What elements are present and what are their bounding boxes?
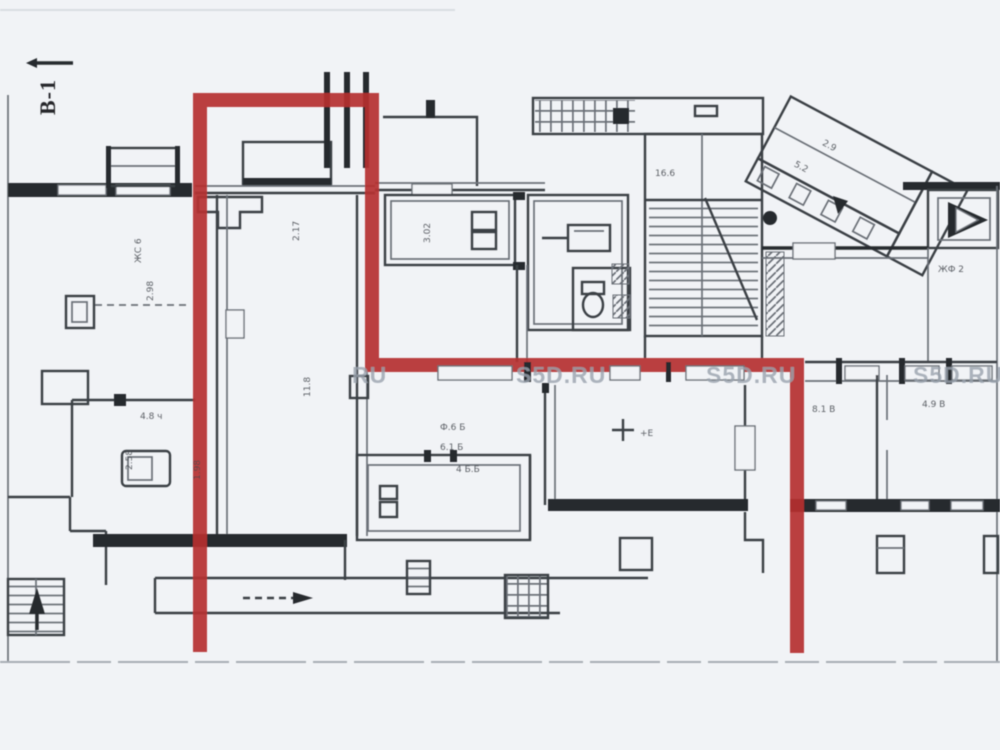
dimension-annotation: 2.98 [146,281,156,301]
exterior-wall [243,178,331,186]
wall-tick [757,167,779,189]
wall-tick [613,108,629,124]
dimension-annotation: 4.8 ч [140,412,163,422]
wall-tick [114,394,126,406]
dimension-annotation: 5.2 [792,160,809,176]
dimension-annotation: 6.1 Б [440,443,463,453]
wall-hatch [766,252,784,336]
dimension-annotation: 2.58 [125,450,135,470]
shaft-hatch [505,575,548,618]
window [610,366,640,380]
interior-walls [8,400,195,585]
dimension-annotation: 2.9 [820,139,838,155]
fixture [66,296,94,328]
wall-tick [424,450,431,462]
dimension-annotation: 16.6 [655,169,675,179]
wing-corridor [746,158,899,256]
dimension-annotation: 1.98 [193,460,203,480]
window [951,501,983,510]
window [58,185,106,195]
dimension-annotation: +Е [640,429,654,439]
elevator-block [903,182,1000,661]
fixture [380,486,397,499]
stair-treads [649,200,758,332]
watermark-text: S5D.RU [913,362,1000,388]
watermark-text: S5D.RU [516,362,606,388]
room-inner [534,201,622,324]
stair-bottom-left [8,579,64,635]
fixture-inner [72,302,87,322]
window [845,366,879,380]
thick-wall [548,499,748,511]
fixture [695,106,717,116]
wall-notch [198,197,262,228]
wall-tick [324,72,330,168]
window [816,501,846,510]
wall-tick [513,262,525,270]
direction-arrow-icon [293,592,313,604]
wall-tick [106,146,111,188]
pier [877,536,904,573]
wall-tick [899,358,905,384]
wall-tick [513,192,525,200]
fixture [380,502,397,517]
wall-tick [175,146,180,188]
wall-segment [645,336,762,358]
wall-tick [789,183,811,205]
wall-tick [853,217,875,239]
dimension-annotation: 4.9 В [922,400,945,410]
section-arrow-icon [26,58,37,68]
drawing-layer: 2.9 5.2 [0,10,1000,662]
dimension-annotation: 4 Б.Б [456,465,480,475]
balcony [108,148,178,186]
wall-tick [836,358,842,384]
wall-tick [666,362,671,382]
dimension-annotation: 2.17 [292,221,302,241]
vent-hatch [407,561,430,594]
room-outline [357,455,530,540]
corridor-walls [155,578,648,613]
watermark-text: RU [352,362,387,388]
rooms-center-upper [375,100,630,362]
cross-symbol [612,419,634,441]
wall-tick [344,72,350,168]
dimension-annotation: 8.1 В [812,405,835,415]
fixture [472,232,496,249]
pier [620,538,652,570]
window [412,184,452,195]
window [438,366,512,380]
section-label: В-1 [26,58,73,115]
dimension-annotation: 3.02 [423,223,433,243]
watermark-text: S5D.RU [706,362,796,388]
window [901,501,929,510]
floorplan-scan: 2.9 5.2 [0,0,1000,750]
fixture [472,212,496,230]
dimension-annotation: ЖФ 2 [938,265,964,275]
dimension-annotation: 11.8 [303,377,313,397]
wall-tick [426,100,435,118]
toilet-bowl [583,293,603,317]
shaft-hatch [613,295,630,318]
balcony [243,142,331,184]
corridor-bottom [155,578,648,613]
thick-wall [93,534,347,547]
walls-left [8,95,375,661]
step-wall [745,512,763,573]
wall-segment [345,455,530,580]
column-dot [763,211,777,225]
door [226,310,244,338]
door [793,243,835,259]
rooms-center-bottom [345,383,763,618]
door [735,426,755,470]
pier [984,536,998,573]
shaft-hatch [612,264,629,284]
dimension-annotation: Ф.6 Б [440,423,465,433]
dimension-annotation: ЖС 6 [134,238,144,263]
wall-segment [383,117,477,186]
floor-plan-canvas: 2.9 5.2 [0,0,1000,750]
fixture [568,225,610,251]
section-label-text: В-1 [35,79,60,115]
